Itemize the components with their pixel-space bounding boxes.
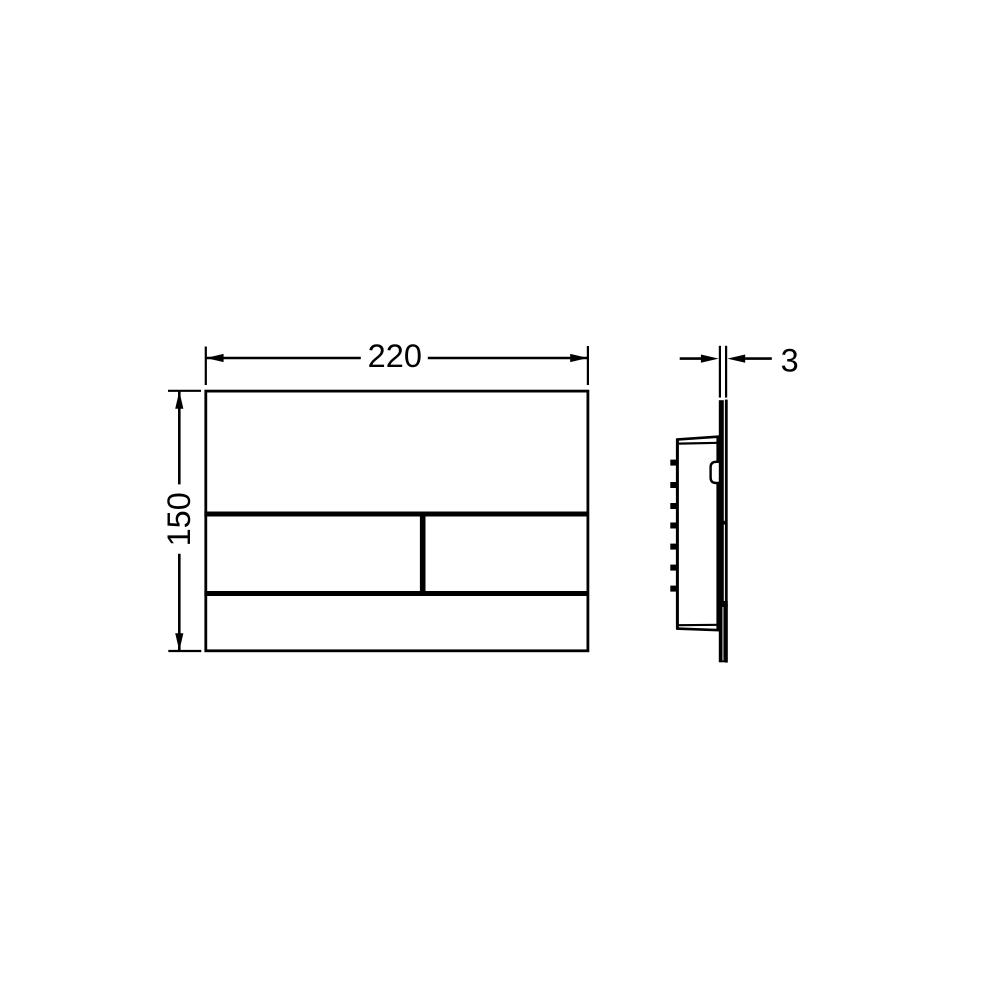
svg-text:220: 220 [368, 338, 422, 374]
svg-text:150: 150 [161, 492, 197, 546]
svg-text:3: 3 [781, 343, 799, 379]
